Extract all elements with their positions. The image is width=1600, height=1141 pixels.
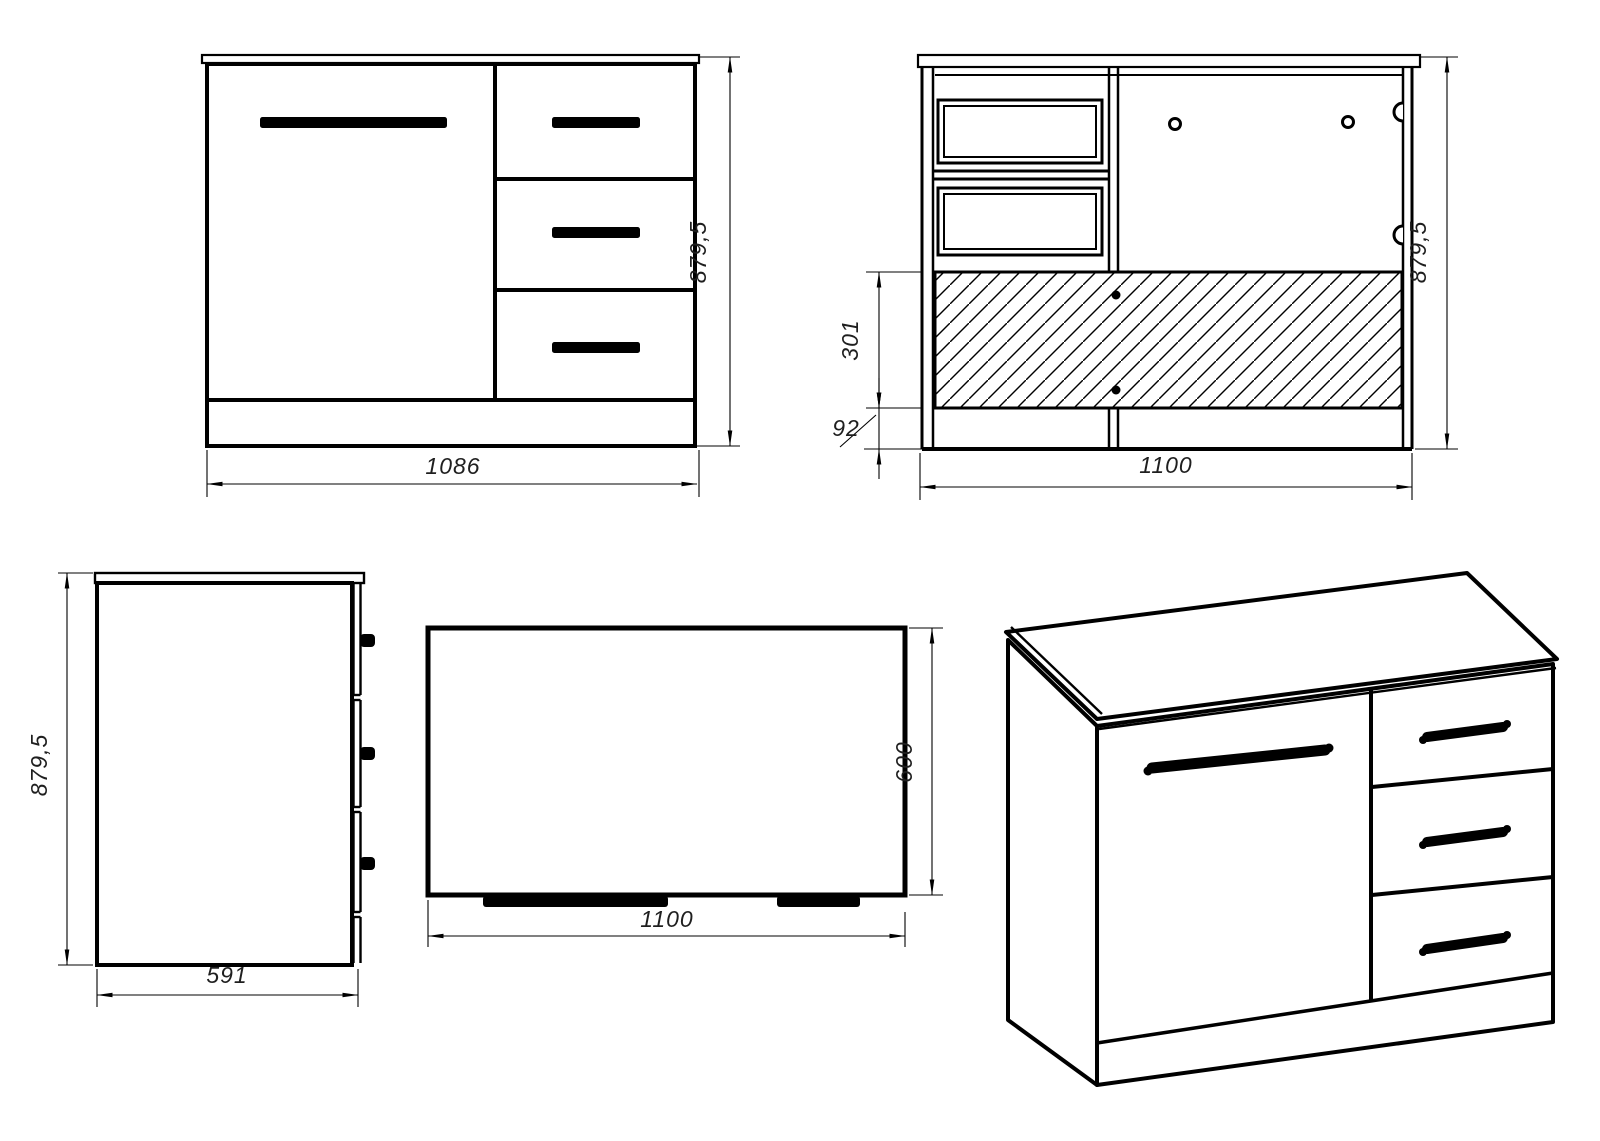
hinge-cup-2: [1394, 226, 1403, 244]
door-handle: [260, 117, 447, 128]
pin-hole-2: [1343, 117, 1354, 128]
top-panel-outline: [428, 628, 905, 895]
back-panel-screw-1: [1112, 291, 1121, 300]
drawer-handle-3: [552, 342, 640, 353]
front-top-panel: [202, 55, 699, 63]
back-panel-hatched: [935, 272, 1402, 408]
top-drawer-handle: [777, 896, 860, 907]
pin-hole-1: [1170, 119, 1181, 130]
back-width-dim-label: 1100: [1139, 452, 1192, 478]
front-view: 879,5 1086: [202, 55, 740, 497]
back-height-dim-label: 879,5: [1405, 221, 1431, 284]
top-width-dim-label: 1100: [640, 906, 693, 932]
drawing-canvas: 879,5 1086: [0, 0, 1600, 1141]
back-drawer-box-2: [938, 188, 1102, 255]
back-panel-screw-2: [1112, 386, 1121, 395]
hinge-cup-1: [1394, 103, 1403, 121]
side-height-dim-label: 879,5: [26, 734, 52, 797]
back-drawer-box-1: [938, 100, 1102, 163]
drawer-handle-1: [552, 117, 640, 128]
drawer-handle-2: [552, 227, 640, 238]
side-view: 879,5 591: [26, 573, 375, 1007]
front-height-dim-label: 879,5: [685, 221, 711, 284]
side-handle-stub-1: [360, 634, 375, 647]
side-carcass: [97, 583, 352, 965]
side-handle-stub-2: [360, 747, 375, 760]
isometric-view: [1006, 573, 1557, 1085]
top-depth-dim-label: 600: [891, 741, 917, 782]
back-top-panel: [918, 55, 1420, 67]
side-handle-stub-3: [360, 857, 375, 870]
plinth-dim-label: 92: [832, 415, 860, 441]
back-panel-dim-label: 301: [837, 319, 863, 360]
back-view: 879,5 1100 301 92: [832, 55, 1458, 500]
top-view: 600 1100: [428, 628, 943, 947]
front-width-dim-label: 1086: [425, 453, 480, 479]
side-depth-dim-label: 591: [206, 962, 247, 988]
